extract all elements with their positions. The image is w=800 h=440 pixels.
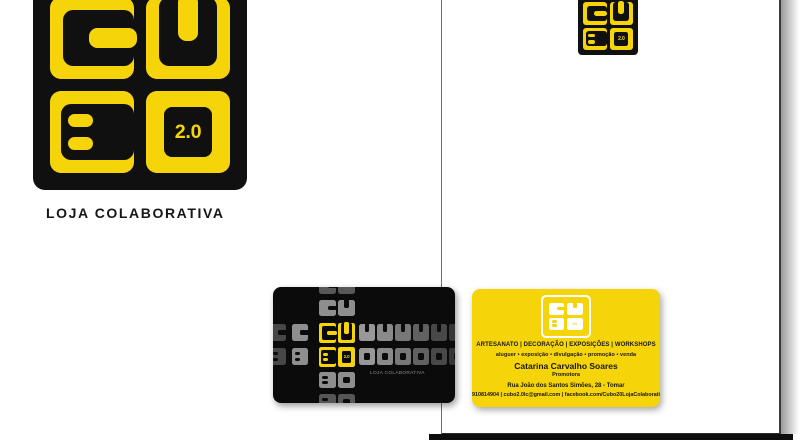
version-badge: 2.0 bbox=[164, 107, 213, 158]
pattern-tile-u bbox=[431, 324, 447, 341]
pattern-tile-o bbox=[359, 348, 375, 365]
pattern-tile-2-0: 2.0 bbox=[567, 318, 583, 330]
pattern-tile-b bbox=[549, 318, 565, 330]
pattern-tile-c bbox=[292, 324, 308, 341]
cubo-logo-outline: 2.0 bbox=[541, 295, 591, 338]
version-text: 2.0 bbox=[175, 121, 201, 144]
card-address: Rua João dos Santos Simões, 28 - Tomar bbox=[472, 383, 660, 389]
glyph-u-notch bbox=[618, 1, 624, 14]
branding-mockup: 2.0 LOJA COLABORATIVA 2.0 LOJA COLABORAT… bbox=[0, 0, 800, 440]
version-text: 2.0 bbox=[344, 355, 350, 360]
glyph-b bbox=[61, 104, 134, 160]
logo-tile-b bbox=[583, 28, 607, 51]
logo-tile-c bbox=[50, 0, 134, 79]
version-badge: 2.0 bbox=[614, 32, 628, 46]
version-badge: 2.0 bbox=[342, 351, 352, 363]
card-services: aluguer • exposição • divulgação • promo… bbox=[472, 352, 660, 358]
pattern-tile-o bbox=[377, 348, 393, 365]
pattern-tile-o bbox=[338, 394, 355, 403]
logo-tile-c bbox=[319, 323, 336, 343]
version-text: 2.0 bbox=[572, 322, 577, 326]
pattern-tile-u bbox=[449, 324, 455, 341]
logo-tile-b bbox=[50, 91, 134, 173]
pattern-tile-c bbox=[549, 303, 565, 315]
pattern-tile-u bbox=[413, 324, 429, 341]
letterhead-shadow bbox=[781, 0, 799, 434]
glyph-b-hole bbox=[68, 114, 93, 127]
logo-tile-2-0: 2.0 bbox=[338, 347, 355, 367]
card-front-tagline: LOJA COLABORATIVA bbox=[370, 371, 425, 376]
pattern-tile-b bbox=[292, 348, 308, 365]
glyph-c-notch bbox=[327, 331, 337, 336]
logo-tile-c bbox=[583, 2, 607, 25]
pattern-tile-u bbox=[395, 324, 411, 341]
contact-role: Promotora bbox=[472, 372, 660, 378]
logo-tile-u bbox=[610, 2, 634, 25]
card-categories: ARTESANATO | DECORAÇÃO | EXPOSIÇÕES | WO… bbox=[472, 342, 660, 348]
glyph-c-notch bbox=[594, 11, 608, 16]
pattern-tile-u bbox=[567, 303, 583, 315]
brand-tagline: LOJA COLABORATIVA bbox=[46, 205, 266, 221]
glyph-b-hole bbox=[588, 40, 595, 44]
pattern-tile-b bbox=[319, 394, 336, 403]
pattern-tile-u bbox=[359, 324, 375, 341]
glyph-c-notch bbox=[89, 28, 138, 48]
glyph-u-notch bbox=[178, 0, 198, 41]
business-card-front: LOJA COLABORATIVA 2.0 bbox=[273, 287, 455, 403]
cubo-logo-primary: 2.0 bbox=[33, 0, 247, 190]
pattern-tile-o bbox=[413, 348, 429, 365]
glyph-b-hole bbox=[588, 34, 595, 38]
cubo-logo-letterhead: 2.0 bbox=[578, 0, 638, 55]
pattern-tile-b bbox=[273, 348, 286, 365]
glyph-u-notch bbox=[344, 322, 348, 334]
logo-tile-2-0: 2.0 bbox=[610, 28, 634, 51]
pattern-tile-c bbox=[273, 324, 286, 341]
bottom-black-bar bbox=[429, 434, 793, 440]
pattern-tile-c bbox=[319, 287, 336, 294]
pattern-tile-o bbox=[431, 348, 447, 365]
pattern-tile-o bbox=[449, 348, 455, 365]
business-card-back: 2.0 ARTESANATO | DECORAÇÃO | EXPOSIÇÕES … bbox=[472, 289, 660, 407]
glyph-b-hole bbox=[323, 353, 328, 356]
logo-tile-b bbox=[319, 347, 336, 367]
pattern-tile-c bbox=[319, 300, 336, 316]
logo-tile-u bbox=[338, 323, 355, 343]
version-text: 2.0 bbox=[618, 36, 625, 42]
glyph-b-hole bbox=[323, 358, 328, 361]
logo-tile-u bbox=[146, 0, 230, 79]
pattern-tile-u bbox=[338, 287, 355, 294]
card-contacts: 910814904 | cubo2.0lc@gmail.com | facebo… bbox=[472, 392, 660, 398]
pattern-tile-u bbox=[377, 324, 393, 341]
pattern-tile-u bbox=[338, 300, 355, 316]
contact-name: Catarina Carvalho Soares bbox=[472, 361, 660, 371]
pattern-tile-o bbox=[338, 372, 355, 388]
pattern-tile-b bbox=[319, 372, 336, 388]
logo-tile-2-0: 2.0 bbox=[146, 91, 230, 173]
pattern-tile-o bbox=[395, 348, 411, 365]
glyph-b-hole bbox=[68, 137, 93, 150]
